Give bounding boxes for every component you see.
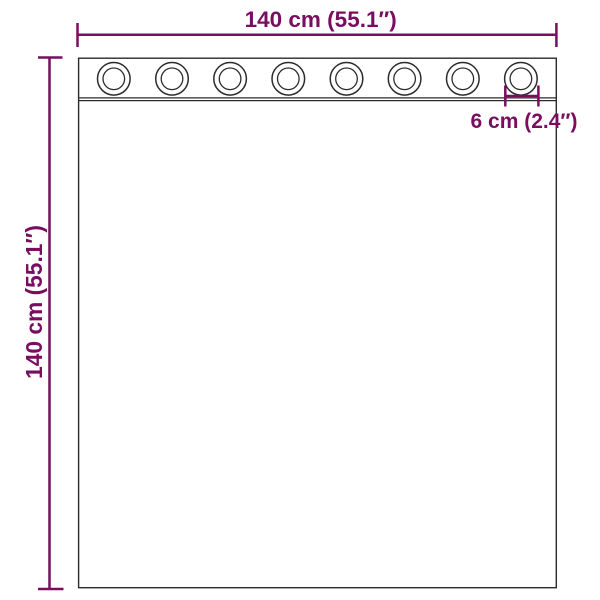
svg-text:140 cm (55.1″): 140 cm (55.1″): [21, 225, 47, 379]
svg-text:6 cm (2.4″): 6 cm (2.4″): [471, 110, 578, 133]
svg-text:140 cm (55.1″): 140 cm (55.1″): [245, 7, 397, 32]
